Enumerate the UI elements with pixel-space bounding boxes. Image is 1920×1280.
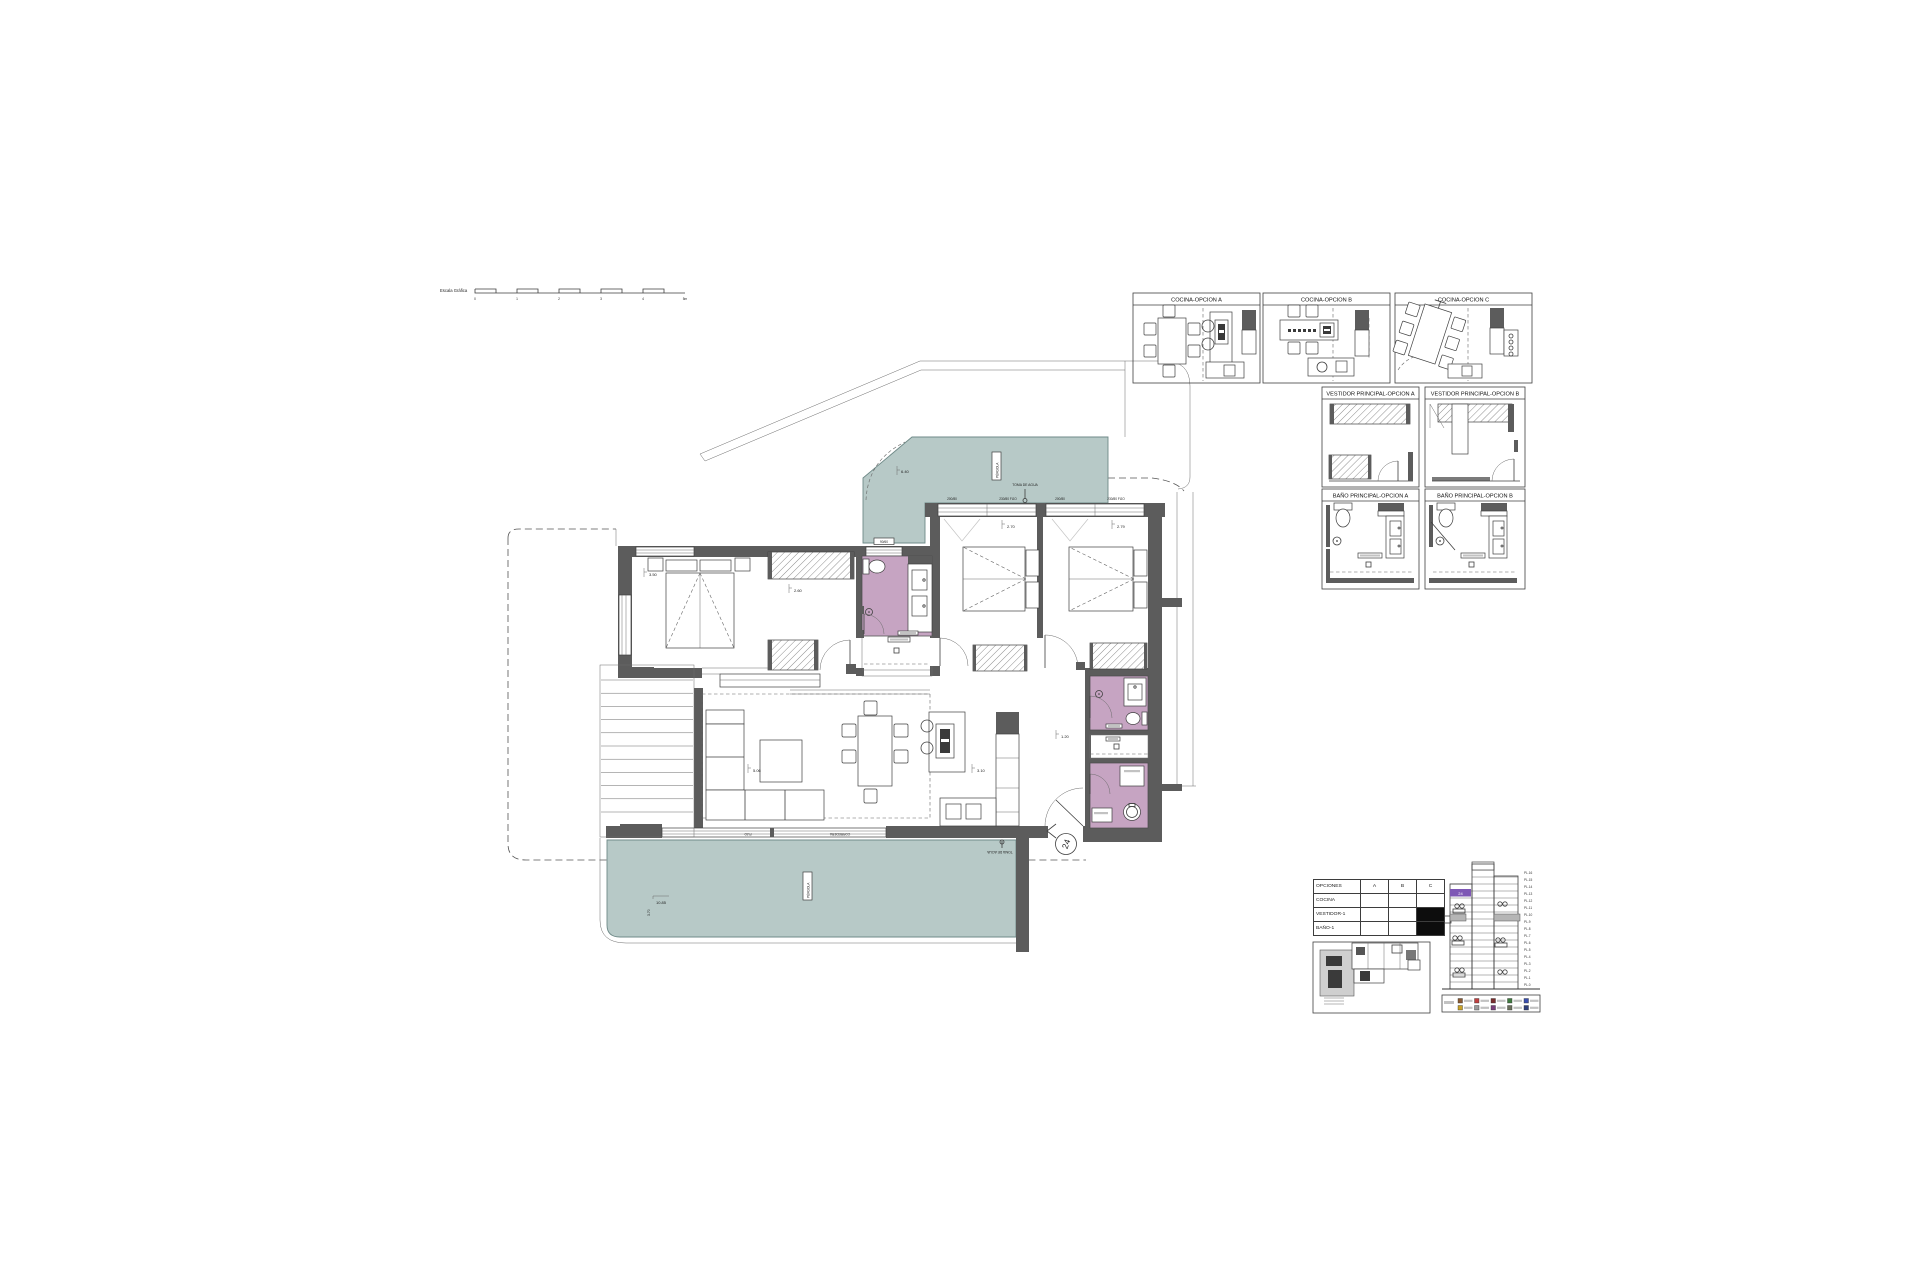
svg-text:2.70: 2.70 xyxy=(1007,524,1016,529)
kitchen-counter xyxy=(940,798,996,826)
section-legend xyxy=(1442,995,1540,1012)
shower-master xyxy=(856,630,932,676)
toilet xyxy=(869,560,885,573)
table-row: VESTIDOR-1 xyxy=(1314,908,1445,922)
floor-label: PL.14 xyxy=(1524,885,1533,889)
panel-title: VESTIDOR PRINCIPAL-OPCION B xyxy=(1431,392,1520,398)
legend-text-bar xyxy=(1514,1007,1523,1009)
dim-bed2: 2.70 xyxy=(1002,520,1016,529)
terrace-bottom: PÉRGOLA TOMA DE AGUA 10.85 3.70 xyxy=(600,838,1029,952)
slider-label-corredera: CORREDERA xyxy=(829,832,850,836)
legend-text-bar xyxy=(1464,1000,1473,1002)
louver-facade xyxy=(600,665,694,837)
table-row: COCINA xyxy=(1314,894,1445,908)
table-header-opciones: OPCIONES xyxy=(1314,880,1361,894)
panel-bano-b: BAÑO PRINCIPAL-OPCION B xyxy=(1425,489,1525,589)
svg-text:3.70: 3.70 xyxy=(647,909,651,916)
legend-text-bar xyxy=(1514,1000,1523,1002)
legend-color-chip xyxy=(1458,1006,1463,1011)
legend-text-bar xyxy=(1497,1000,1506,1002)
floor-label: PL.1 xyxy=(1524,976,1531,980)
svg-text:10.85: 10.85 xyxy=(656,900,667,905)
panel-title: BAÑO PRINCIPAL-OPCION B xyxy=(1437,493,1513,500)
panel-vestidor-a: VESTIDOR PRINCIPAL-OPCION A xyxy=(1322,387,1419,487)
legend-color-chip xyxy=(1491,1006,1496,1011)
floor-label: PL.6 xyxy=(1524,941,1531,945)
table-header-c: C xyxy=(1417,880,1445,894)
floor-label: PL.15 xyxy=(1524,878,1533,882)
washing-machine xyxy=(1124,804,1141,821)
legend-color-chip xyxy=(1491,999,1496,1004)
bedroom-2: 2.70 xyxy=(929,519,1039,671)
dim-wardrobe: 2.60 xyxy=(789,584,803,593)
plan-drawing: Escala Gráfica 012345m PÉRGOLA TOMA DE A… xyxy=(0,0,1920,1280)
site-key-plan xyxy=(1313,942,1430,1013)
kitchen-tall-units xyxy=(996,712,1019,826)
hall-wardrobe xyxy=(768,640,818,670)
toilet xyxy=(1126,713,1140,725)
floor-label: PL.9 xyxy=(1524,920,1531,924)
table-header-row: OPCIONES A B C xyxy=(1314,880,1445,894)
highlighted-unit xyxy=(1328,970,1342,988)
bathroom-master xyxy=(856,556,932,676)
toilet xyxy=(1439,509,1453,527)
floor-label: PL.5 xyxy=(1524,948,1531,952)
floor-label: PL.10 xyxy=(1524,913,1533,917)
floor-label: PL.7 xyxy=(1524,934,1531,938)
water-tap-label-bottom: TOMA DE AGUA xyxy=(986,850,1012,854)
legend-color-chip xyxy=(1475,999,1480,1004)
scale-tick-label: 1 xyxy=(516,297,518,301)
legend-text-bar xyxy=(1530,1007,1539,1009)
panel-title: COCINA-OPCION A xyxy=(1171,298,1222,304)
table-header-b: B xyxy=(1389,880,1417,894)
panel-cocina-b: COCINA-OPCION B xyxy=(1263,293,1390,383)
window-label-bed3-b: 230/80 FIJO xyxy=(1107,497,1125,501)
shower-hall xyxy=(1090,735,1148,758)
floor-label: PL.13 xyxy=(1524,892,1533,896)
legend-color-chip xyxy=(1508,999,1513,1004)
svg-text:3.10: 3.10 xyxy=(977,768,986,773)
table-header-a: A xyxy=(1361,880,1389,894)
svg-text:3.50: 3.50 xyxy=(649,572,658,577)
legend-text-bar xyxy=(1530,1000,1539,1002)
bedroom-3: 2.79 xyxy=(1037,519,1147,670)
scale-tick-label: 0 xyxy=(474,297,476,301)
wardrobe xyxy=(1090,643,1147,669)
floor-label: PL.0 xyxy=(1524,983,1531,987)
floor-label: PL.2 xyxy=(1524,969,1531,973)
panel-cocina-c: COCINA-OPCION C xyxy=(1393,292,1532,383)
svg-text:2.60: 2.60 xyxy=(794,588,803,593)
options-matrix-table: OPCIONES A B C COCINA VESTIDOR-1 BAÑO-1 xyxy=(1313,879,1445,936)
scale-bar-label: Escala Gráfica xyxy=(440,288,468,293)
apartment-floor-plan: PÉRGOLA TOMA DE AGUA 6.40 PÉRGOLA TOMA D… xyxy=(508,361,1196,952)
window-label-bed2-a: 200/80 xyxy=(947,497,957,501)
entry-door xyxy=(1045,788,1083,826)
scale-tick-label: 2 xyxy=(558,297,560,301)
svg-text:1.20: 1.20 xyxy=(1061,734,1070,739)
utility-room xyxy=(1090,763,1148,828)
panel-bano-a: BAÑO PRINCIPAL-OPCION A xyxy=(1322,489,1419,589)
section-window-symbols xyxy=(1452,902,1507,977)
panel-title: COCINA-OPCION C xyxy=(1438,298,1489,304)
floor-label: PL.12 xyxy=(1524,899,1533,903)
panel-vestidor-b: VESTIDOR PRINCIPAL-OPCION B xyxy=(1425,387,1525,487)
svg-text:2.79: 2.79 xyxy=(1117,524,1126,529)
table-row: BAÑO-1 xyxy=(1314,922,1445,936)
legend-text-bar xyxy=(1481,1007,1490,1009)
coffee-table xyxy=(760,740,802,782)
kitchen-island xyxy=(921,712,965,772)
scale-tick-label: 3 xyxy=(600,297,602,301)
row-label-bano: BAÑO-1 xyxy=(1314,922,1361,936)
panel-title: COCINA-OPCION B xyxy=(1301,298,1352,304)
terrace-top: PÉRGOLA TOMA DE AGUA 6.40 xyxy=(863,437,1108,543)
entry-hall xyxy=(702,640,930,687)
legend-color-chip xyxy=(1524,1006,1529,1011)
sideboard xyxy=(720,674,820,687)
unit-number: 24 xyxy=(1060,838,1073,851)
unit-tag-label: 24 xyxy=(1458,891,1463,896)
toilet xyxy=(1336,509,1350,527)
unit-24-marker: 24 xyxy=(1047,824,1077,855)
blueprint-sheet: { "colors": { "teal": "#b7c9c7", "purple… xyxy=(0,0,1920,1280)
pergola-label-bottom: PÉRGOLA xyxy=(806,882,811,898)
building-section-diagram: 24 PL.16PL.15PL.14PL.13PL.12PL.11PL.10PL… xyxy=(1442,862,1540,1012)
bedroom-master: 3.50 2.60 xyxy=(644,552,854,648)
window-label-bed3-a: 200/80 xyxy=(1055,497,1065,501)
legend-text-bar xyxy=(1481,1000,1490,1002)
dim-living: 5.06 xyxy=(748,764,762,773)
floor-label: PL.8 xyxy=(1524,927,1531,931)
scale-tick-label: 4 xyxy=(642,297,644,301)
dim-entry: 1.20 xyxy=(1056,730,1070,739)
scale-tick-label: 5m xyxy=(683,297,688,301)
legend-color-chip xyxy=(1524,999,1529,1004)
row-label-vestidor: VESTIDOR-1 xyxy=(1314,908,1361,922)
sofa-seat xyxy=(706,790,824,820)
window-label-bath: 90/60 xyxy=(880,540,888,544)
legend-color-chip xyxy=(1475,1006,1480,1011)
bathroom-2 xyxy=(1090,676,1148,730)
pergola-label-top: PÉRGOLA xyxy=(995,462,1000,478)
row-label-cocina: COCINA xyxy=(1314,894,1361,908)
graphic-scale-bar: Escala Gráfica 012345m xyxy=(440,288,688,301)
legend-color-chip xyxy=(1508,1006,1513,1011)
svg-text:5.06: 5.06 xyxy=(753,768,762,773)
wardrobe xyxy=(973,645,1027,671)
slider-label-fixed: FIJO xyxy=(744,832,751,836)
dining-set xyxy=(842,701,908,803)
floor-label: PL.3 xyxy=(1524,962,1531,966)
wardrobe xyxy=(768,552,854,579)
panel-title: BAÑO PRINCIPAL-OPCION A xyxy=(1333,493,1409,500)
water-tap-label-top: TOMA DE AGUA xyxy=(1012,483,1038,487)
window-label-bed2-b: 230/80 FIJO xyxy=(999,497,1017,501)
dim-kitchen: 3.10 xyxy=(972,764,986,773)
floor-label: PL.4 xyxy=(1524,955,1531,959)
panel-cocina-a: COCINA-OPCION A xyxy=(1133,293,1260,383)
floor-label: PL.16 xyxy=(1524,871,1533,875)
legend-text-bar xyxy=(1497,1007,1506,1009)
floor-label: PL.11 xyxy=(1524,906,1532,910)
dim-bed3: 2.79 xyxy=(1112,520,1126,529)
legend-color-chip xyxy=(1458,999,1463,1004)
svg-text:6.40: 6.40 xyxy=(901,469,910,474)
living-room: 5.06 3.10 1.20 xyxy=(702,690,1070,826)
legend-text-bar xyxy=(1464,1007,1473,1009)
panel-title: VESTIDOR PRINCIPAL-OPCION A xyxy=(1326,392,1414,398)
